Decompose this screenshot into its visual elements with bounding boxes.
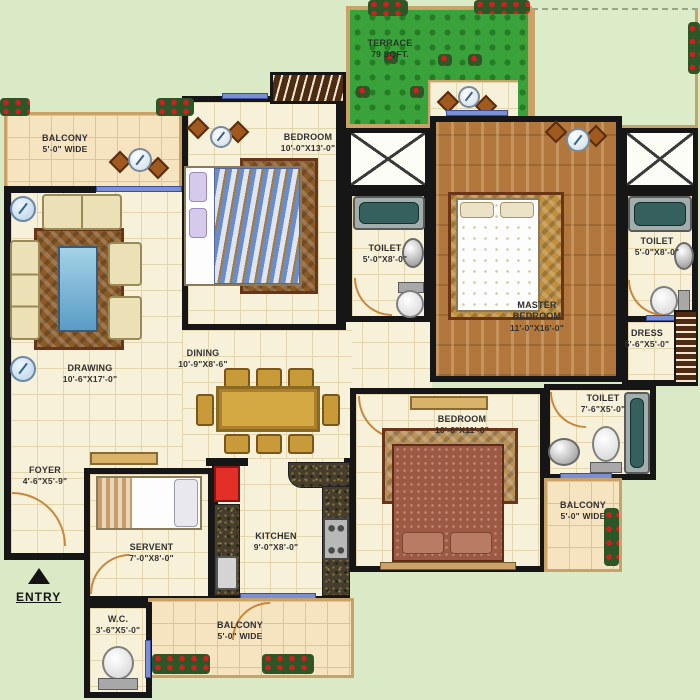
pillow: [500, 202, 534, 218]
fan-needle: [18, 363, 28, 375]
flower-icon: [0, 98, 30, 116]
room-size: 4'-6"X5'-9": [10, 476, 80, 487]
fan-icon: [10, 356, 36, 382]
window: [222, 93, 268, 99]
toilet-mid-label: TOILET 5'-0"X8'-0": [350, 243, 420, 265]
toilet-right-label: TOILET 5'-0"X8'-0": [622, 236, 692, 258]
blanket: [214, 168, 300, 284]
room-name: W.C.: [90, 614, 146, 625]
bathtub: [628, 196, 692, 232]
fan-icon: [10, 196, 36, 222]
kitchen-sink: [216, 556, 238, 590]
flower-icon: [474, 0, 530, 14]
pillow: [450, 532, 492, 554]
room-name: TOILET: [622, 236, 692, 247]
dining-chair: [322, 394, 340, 426]
pillow: [174, 479, 198, 527]
pillow: [402, 532, 444, 554]
toilet-bowl: [592, 426, 620, 462]
room-name: BEDROOM: [272, 132, 344, 143]
flower-icon: [438, 54, 452, 66]
pillow: [189, 208, 207, 238]
toilet-tank: [590, 462, 622, 473]
master-bedroom-label: MASTER BEDROOM 11'-0"X16'-0": [500, 300, 574, 333]
room-name: SERVENT: [104, 542, 199, 553]
wall-segment: [4, 186, 96, 193]
room-size: 3'-6"X5'-0": [90, 625, 146, 636]
round-table: [128, 148, 152, 172]
room-size: 10'-0"X13'-0": [272, 143, 344, 154]
balcony-bottom-label: BALCONY 5'-0" WIDE: [194, 620, 286, 642]
room-name: DRAWING: [40, 363, 140, 374]
pillow: [189, 172, 207, 202]
dining-label: DINING 10'-9"X8'-6": [158, 348, 248, 370]
room-name: BALCONY: [546, 500, 620, 511]
dining-chair: [256, 368, 282, 388]
room-size: 7'-6"X5'-0": [558, 404, 648, 415]
round-table: [566, 128, 590, 152]
room-name: BEDROOM: [412, 414, 512, 425]
room-name: TOILET: [350, 243, 420, 254]
room-name: TERRACE: [352, 38, 428, 49]
open-terrace-area: [532, 8, 698, 128]
bedroom-bottom-label: BEDROOM 10'-6"X11'-0": [412, 414, 512, 436]
room-size: 10'-6"X17'-0": [40, 374, 140, 385]
bathtub: [353, 196, 425, 230]
wardrobe: [270, 72, 346, 104]
stove: [323, 518, 349, 560]
bathtub-basin: [359, 202, 419, 224]
room-size: 10'-9"X8'-6": [158, 359, 248, 370]
room-name: FOYER: [10, 465, 80, 476]
room-name: TOILET: [558, 393, 648, 404]
balcony-top-left-label: BALCONY 5'-0" WIDE: [25, 133, 105, 155]
room-size: 10'-6"X11'-0": [412, 425, 512, 436]
sofa: [42, 194, 122, 230]
drawing-rug-center: [58, 246, 98, 332]
terrace-label: TERRACE 79 SQFT.: [352, 38, 428, 60]
servant-label: SERVENT 7'-0"X8'-0": [104, 542, 199, 564]
room-size: 11'-0"X16'-0": [500, 323, 574, 334]
flower-icon: [152, 654, 210, 674]
round-table: [458, 86, 480, 108]
foyer-label: FOYER 4'-6"X5'-9": [10, 465, 80, 487]
bed-bench: [380, 562, 516, 570]
flower-icon: [156, 98, 194, 116]
pillow: [460, 202, 494, 218]
room-size: 5'-0" WIDE: [194, 631, 286, 642]
window: [446, 110, 508, 116]
room-name: BALCONY: [194, 620, 286, 631]
blanket: [98, 478, 132, 528]
round-table: [210, 126, 232, 148]
room-size: 79 SQFT.: [352, 49, 428, 60]
balcony-right-label: BALCONY 5'-0" WIDE: [546, 500, 620, 522]
bedroom-top-label: BEDROOM 10'-0"X13'-0": [272, 132, 344, 154]
kitchen-counter: [288, 462, 350, 488]
shelf: [90, 452, 158, 465]
refrigerator: [214, 466, 240, 502]
toilet-tank: [98, 678, 138, 690]
shelf: [410, 396, 488, 410]
room-name: MASTER BEDROOM: [500, 300, 574, 323]
flower-icon: [410, 86, 424, 98]
toilet-bowl: [396, 290, 424, 318]
dining-chair: [224, 368, 250, 388]
sofa: [10, 240, 40, 340]
table-mark: [465, 92, 473, 102]
flower-icon: [468, 54, 482, 66]
dining-chair: [256, 434, 282, 454]
drawing-label: DRAWING 10'-6"X17'-0": [40, 363, 140, 385]
dining-chair: [288, 368, 314, 388]
sink: [548, 438, 580, 466]
room-size: 5'-0"X8'-0": [350, 254, 420, 265]
window: [145, 640, 151, 678]
room-size: 5'-0" WIDE: [25, 144, 105, 155]
room-name: KITCHEN: [230, 531, 322, 542]
dress-label: DRESS 5'-6"X5'-0": [616, 328, 678, 350]
room-size: 7'-0"X8'-0": [104, 553, 199, 564]
wall-segment: [206, 458, 248, 466]
room-size: 5'-0" WIDE: [546, 511, 620, 522]
flower-icon: [368, 0, 408, 16]
armchair: [108, 296, 142, 340]
window: [96, 186, 182, 192]
toilet-bottom-label: TOILET 7'-6"X5'-0": [558, 393, 648, 415]
floor-plan: ENTRY BALCONY 5'-0" WI: [0, 0, 700, 700]
fan-needle: [18, 203, 28, 215]
dining-table: [216, 386, 320, 432]
armchair: [108, 242, 142, 286]
entry-label: ENTRY: [16, 590, 61, 604]
entry-arrow-icon: [28, 568, 50, 584]
dining-chair: [288, 434, 314, 454]
table-mark: [574, 134, 583, 145]
room-size: 5'-6"X5'-0": [616, 339, 678, 350]
shaft-right: [622, 128, 698, 190]
table-mark: [217, 132, 225, 142]
room-name: DRESS: [616, 328, 678, 339]
bathtub-basin: [634, 202, 686, 226]
dining-chair: [196, 394, 214, 426]
flower-icon: [262, 654, 314, 674]
flower-icon: [688, 22, 700, 74]
room-name: DINING: [158, 348, 248, 359]
dining-chair: [224, 434, 250, 454]
wc-label: W.C. 3'-6"X5'-0": [90, 614, 146, 636]
kitchen-label: KITCHEN 9'-0"X8'-0": [230, 531, 322, 553]
table-mark: [136, 154, 145, 165]
room-name: BALCONY: [25, 133, 105, 144]
room-size: 9'-0"X8'-0": [230, 542, 322, 553]
toilet-bowl: [102, 646, 134, 680]
flower-icon: [356, 86, 370, 98]
shaft-left: [346, 128, 430, 190]
room-size: 5'-0"X8'-0": [622, 247, 692, 258]
